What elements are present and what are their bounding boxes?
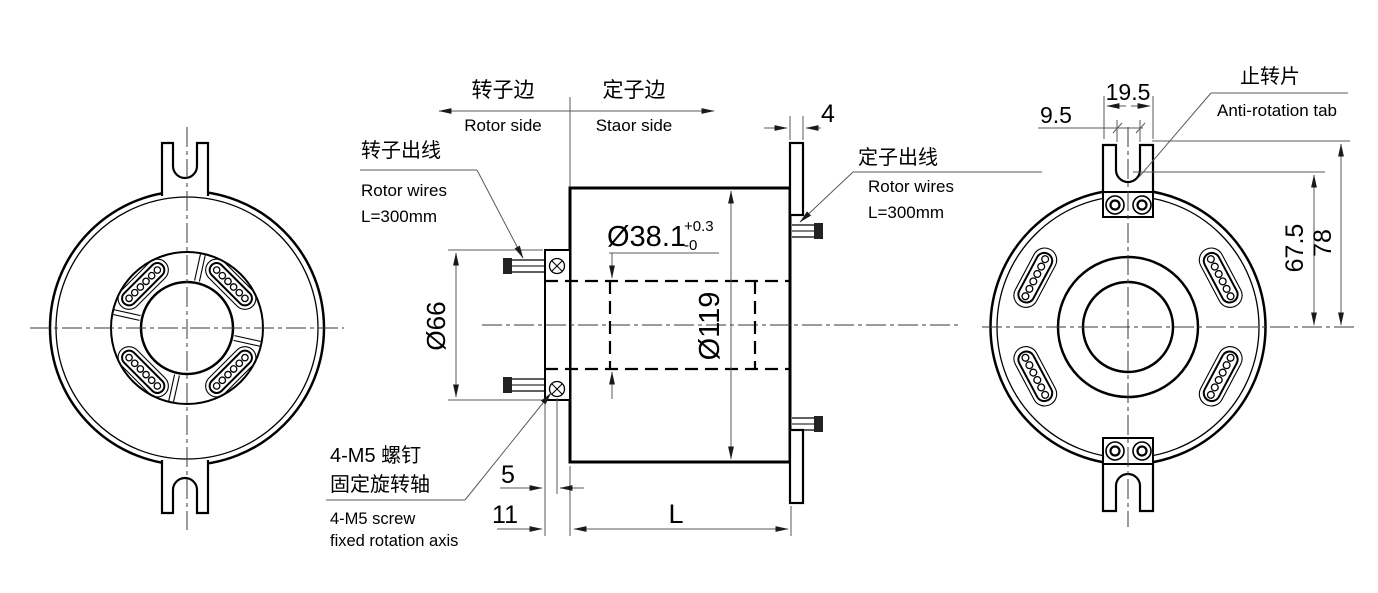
rotor-wire-top xyxy=(503,258,545,274)
dim-plate-width-text: 11 xyxy=(492,501,518,529)
left-view xyxy=(30,127,344,530)
text-layer: 转子边 Rotor side 定子边 Staor side 转子出线 Rotor… xyxy=(330,65,1337,550)
dim-slot-width-text: 9.5 xyxy=(1040,102,1072,128)
flange-top xyxy=(790,143,803,215)
label-stator-wires-cn: 定子出线 xyxy=(858,146,938,169)
dim-body-length-text: L xyxy=(668,499,683,529)
dim-rotor-plate-dia-text: Ø66 xyxy=(421,301,451,350)
dim-tab-height-text: 78 xyxy=(1309,229,1337,257)
label-anti-rotation-en: Anti-rotation tab xyxy=(1217,101,1337,120)
drawing-canvas: 转子边 Rotor side 定子边 Staor side 转子出线 Rotor… xyxy=(0,0,1378,593)
label-rotor-wires-cn: 转子出线 xyxy=(361,139,441,162)
rotor-wire-bottom xyxy=(503,377,545,393)
dim-flange-thickness xyxy=(764,116,821,140)
anti-rotation-fork-bottom xyxy=(162,460,208,513)
flange-bottom xyxy=(790,430,803,503)
connector-slot xyxy=(201,255,260,314)
dim-screw-offset-text: 5 xyxy=(501,461,515,489)
label-screw-note-en1: 4-M5 screw xyxy=(330,510,415,528)
dim-slot-depth-text: 67.5 xyxy=(1281,224,1309,273)
label-screw-note-cn1: 4-M5 螺钉 xyxy=(330,444,421,467)
label-screw-note-en2: fixed rotation axis xyxy=(330,532,458,550)
label-rotor-wires-en: Rotor wires xyxy=(361,181,447,200)
connector-slot xyxy=(1195,244,1246,312)
connector-slot xyxy=(1195,342,1246,410)
label-rotor-side-cn: 转子边 xyxy=(472,79,535,102)
dim-body-dia-text: Ø119 xyxy=(694,292,726,361)
label-stator-wires-en: Rotor wires xyxy=(868,177,954,196)
connector-slot xyxy=(1010,342,1061,410)
label-stator-wires-length: L=300mm xyxy=(868,203,944,222)
slip-ring-engineering-drawing: 转子边 Rotor side 定子边 Staor side 转子出线 Rotor… xyxy=(0,0,1378,593)
label-stator-side-cn: 定子边 xyxy=(603,79,666,102)
dim-flange-thickness-text: 4 xyxy=(821,100,835,128)
dim-bore-tol-plus: +0.3 xyxy=(684,218,714,235)
label-stator-side-en: Staor side xyxy=(596,116,673,135)
right-view xyxy=(982,93,1356,527)
connector-slot xyxy=(201,342,260,401)
label-rotor-wires-length: L=300mm xyxy=(361,207,437,226)
anti-rotation-fork-top xyxy=(162,143,208,196)
connector-slot xyxy=(1010,244,1061,312)
dim-tab-width-text: 19.5 xyxy=(1106,79,1151,105)
label-screw-note-cn2: 固定旋转轴 xyxy=(330,473,430,496)
dim-bore-tol-minus: -0 xyxy=(684,237,697,254)
connector-slot xyxy=(114,342,173,401)
side-split-annotation xyxy=(439,97,714,187)
stator-wire-top xyxy=(792,223,823,239)
label-rotor-side-en: Rotor side xyxy=(464,116,541,135)
label-anti-rotation-cn: 止转片 xyxy=(1240,65,1300,88)
stator-wire-bottom xyxy=(792,416,823,432)
dim-bore-text: Ø38.1 xyxy=(607,221,686,253)
connector-slot xyxy=(114,255,173,314)
